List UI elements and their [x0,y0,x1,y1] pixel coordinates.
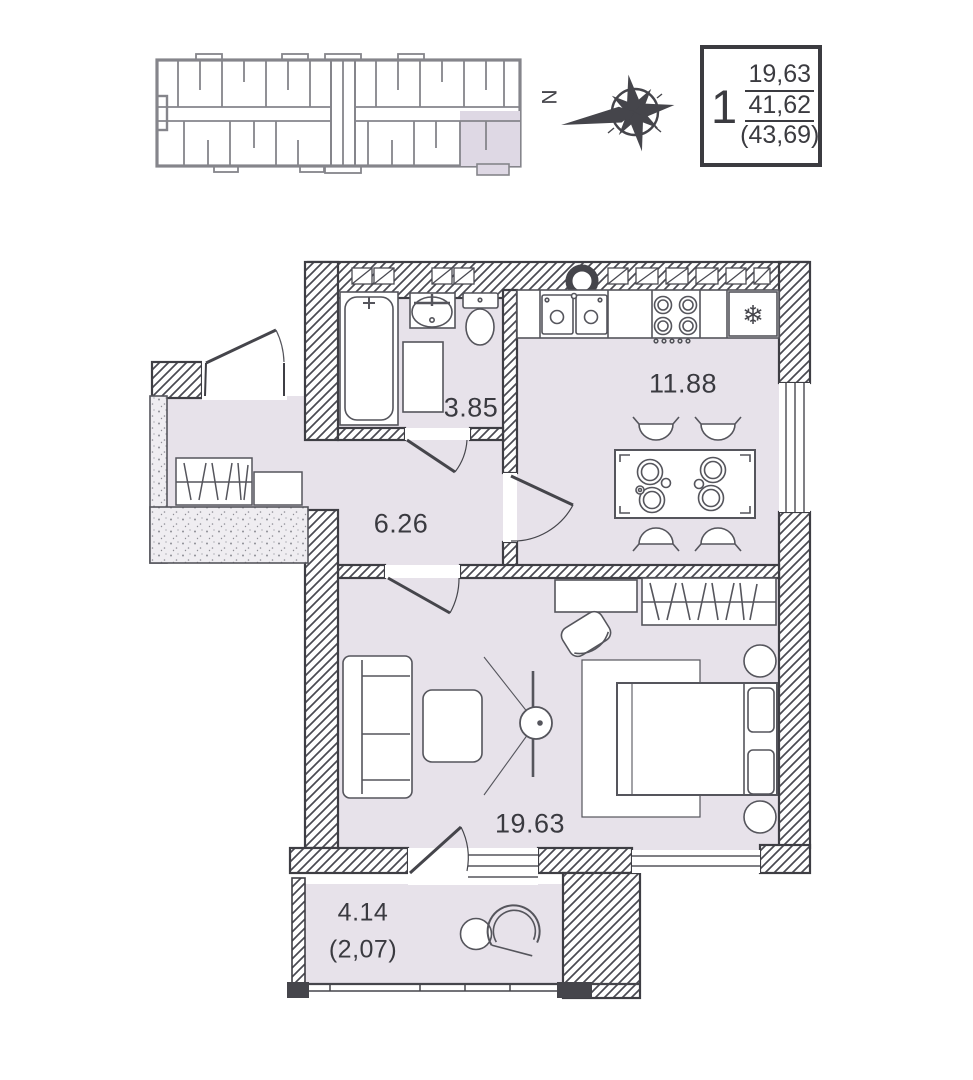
floorplan-drawing: ❄ [0,0,973,1080]
compass-rose [555,68,682,165]
bed [617,683,777,795]
legend-box: 1 19,63 41,62 (43,69) [700,45,822,167]
sofa [343,656,412,798]
fridge: ❄ [729,292,777,336]
apartment-area-value: 41,62 [745,92,814,123]
area-table: 19,63 41,62 (43,69) [737,61,822,151]
pillow [748,750,774,794]
washing-machine [403,342,443,412]
hall-wardrobe [176,458,252,505]
entry-door [202,330,287,400]
pillow [748,688,774,732]
living-room-window-left [468,848,538,885]
living-area-value: 19,63 [745,61,814,92]
dining-table [615,450,755,518]
room-label-living-room: 19.63 [495,809,565,840]
north-label: N [539,89,563,104]
nightstand [744,801,776,833]
key-plan [157,54,520,175]
unit-number: 1 [704,83,737,130]
total-area-value: (43,69) [737,122,822,151]
balcony-glazing [287,982,640,998]
desk [555,580,637,612]
bathroom-sink [410,293,455,328]
room-label-hallway: 6.26 [374,509,429,540]
hall-cabinet [254,472,302,505]
living-room-window-right [632,850,760,873]
coffee-table [423,690,482,762]
floorplan-page: ❄ [0,0,973,1080]
living-wardrobe [642,578,776,625]
room-label-bathroom: 3.85 [444,393,499,424]
room-label-balcony-coefficient: (2,07) [329,936,397,965]
bathtub [340,292,398,425]
room-label-kitchen: 11.88 [649,369,717,400]
kitchen-window [779,383,810,512]
room-label-balcony: 4.14 [338,899,389,928]
fridge-icon: ❄ [742,300,764,330]
nightstand [744,645,776,677]
